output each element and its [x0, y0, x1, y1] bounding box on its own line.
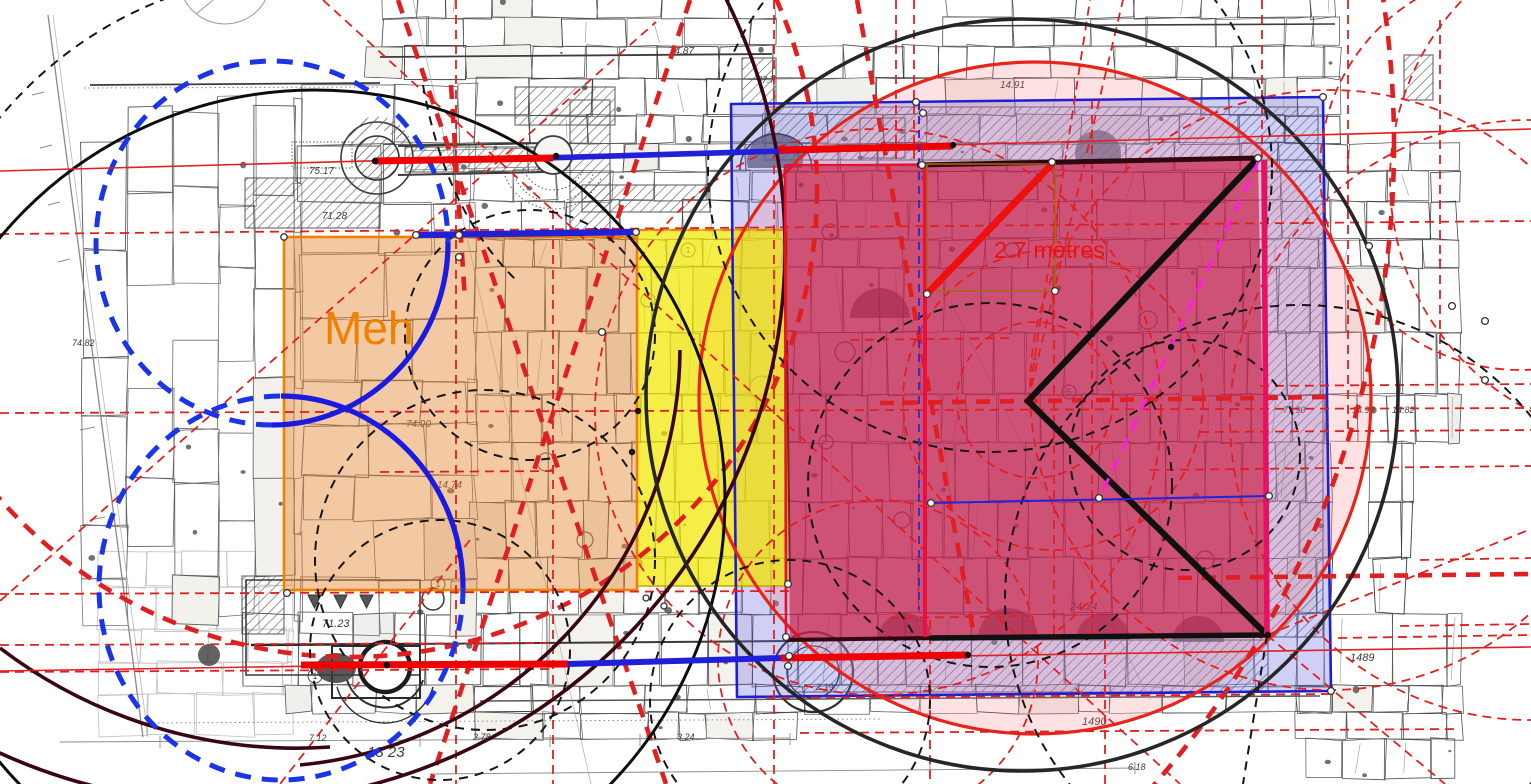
svg-text:1: 1 — [312, 671, 317, 681]
svg-text:Meh: Meh — [324, 302, 413, 354]
svg-text:1489: 1489 — [1350, 652, 1374, 664]
svg-text:2.7 mètres: 2.7 mètres — [994, 237, 1105, 263]
svg-text:71.28: 71.28 — [322, 211, 347, 222]
svg-text:14.82: 14.82 — [1392, 405, 1415, 415]
svg-text:6.18: 6.18 — [1128, 762, 1146, 772]
svg-text:74.82: 74.82 — [72, 338, 95, 348]
svg-text:75.17: 75.17 — [309, 166, 334, 177]
svg-text:3.24: 3.24 — [677, 732, 695, 742]
